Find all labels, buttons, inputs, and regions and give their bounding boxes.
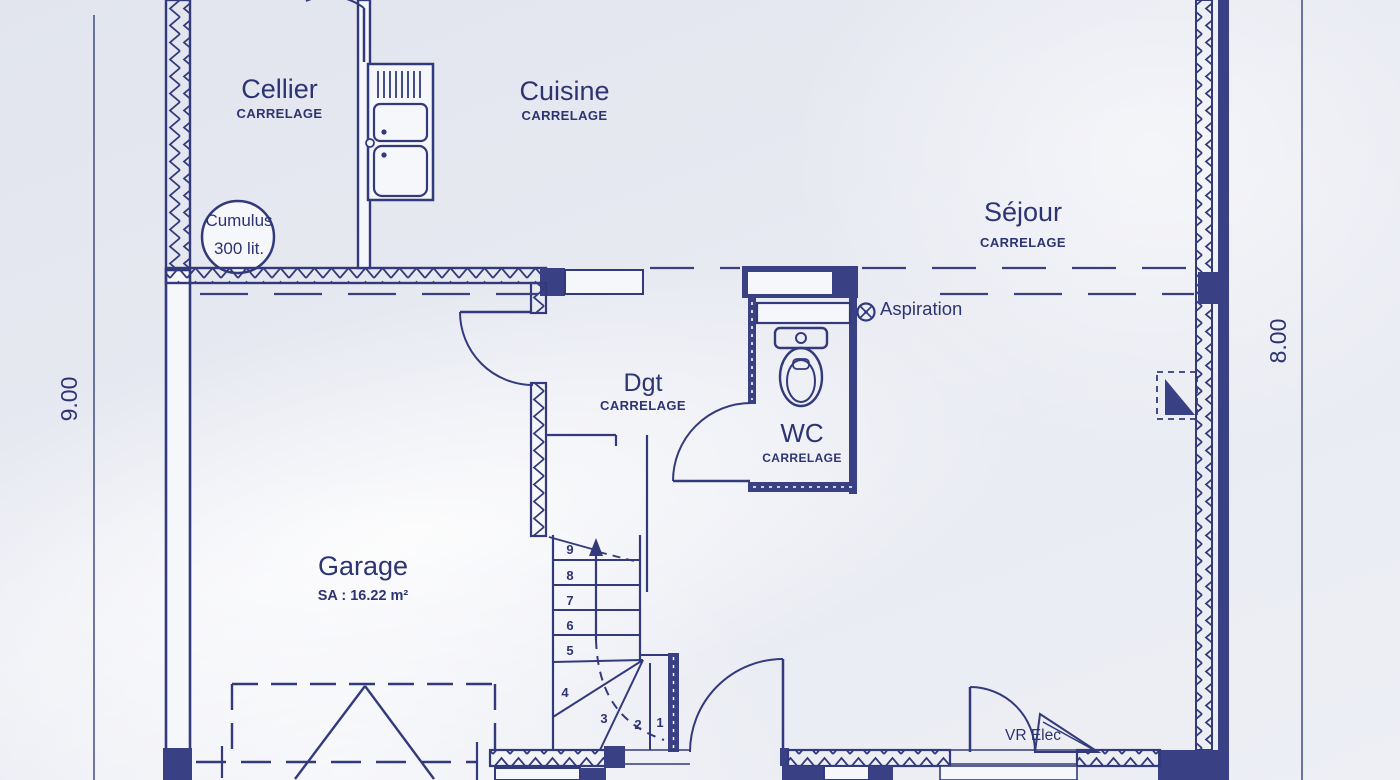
room-label-wc: WC (748, 419, 856, 447)
toilet-symbol (757, 303, 850, 406)
dimension-right: 8.00 (1266, 309, 1296, 373)
stair-step-number: 1 (652, 716, 668, 730)
cumulus-label-line2: 300 lit. (193, 240, 285, 258)
stair-step-number: 8 (562, 569, 578, 583)
stair-step-number: 3 (596, 712, 612, 726)
room-finish-cuisine: CARRELAGE (477, 109, 652, 123)
cellier-cuisine-wall (306, 0, 370, 268)
aspiration-label: Aspiration (880, 299, 962, 319)
aspiration-icon (858, 304, 875, 321)
room-label-dgt: Dgt (567, 370, 719, 397)
stair-step-number: 5 (562, 644, 578, 658)
room-label-cellier: Cellier (197, 75, 362, 104)
vr-elec-label: VR Elec (990, 728, 1076, 745)
stair-step-number: 6 (562, 619, 578, 633)
room-finish-sejour: CARRELAGE (937, 236, 1109, 250)
mid-insulated-wall (166, 268, 643, 296)
floor-plan-page: Cellier CARRELAGE Cuisine CARRELAGE Séjo… (0, 0, 1400, 780)
bottom-walls (490, 659, 1160, 780)
room-finish-dgt: CARRELAGE (567, 399, 719, 413)
room-finish-wc: CARRELAGE (748, 452, 856, 465)
room-finish-cellier: CARRELAGE (197, 107, 362, 121)
stair-step-number: 2 (630, 718, 646, 732)
stair-step-number: 4 (557, 686, 573, 700)
kitchen-sink-symbol (366, 64, 433, 200)
stair-step-number: 9 (562, 543, 578, 557)
stair-step-number: 7 (562, 594, 578, 608)
garage-dgt-wall (460, 283, 546, 536)
room-label-sejour: Séjour (937, 198, 1109, 227)
flue-symbol (1157, 372, 1197, 419)
cumulus-label-line1: Cumulus (193, 212, 285, 230)
up-arrow-icon (589, 538, 603, 556)
garage-door-symbol (196, 684, 495, 780)
room-label-garage: Garage (277, 552, 449, 581)
room-area-garage: SA : 16.22 m² (277, 589, 449, 605)
dimension-left: 9.00 (57, 367, 87, 431)
room-label-cuisine: Cuisine (477, 77, 652, 106)
